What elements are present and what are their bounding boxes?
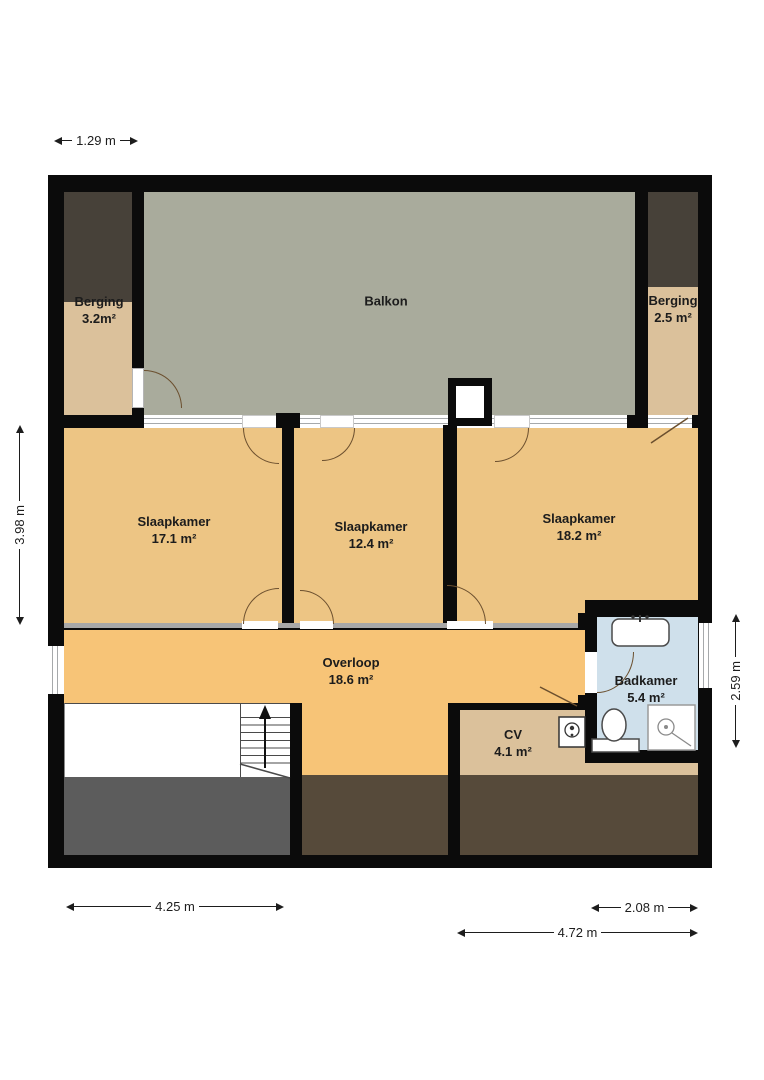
- room-name: Berging: [648, 293, 697, 310]
- dimension-line: [668, 907, 690, 908]
- arrow-down-icon: [732, 740, 740, 748]
- wall: [282, 415, 294, 630]
- arrow-right-icon: [690, 904, 698, 912]
- room-area: 4.1 m²: [494, 744, 532, 761]
- wall: [585, 600, 698, 617]
- dimension-line: [735, 705, 736, 740]
- void-space: [302, 775, 448, 855]
- arrow-up-icon: [732, 614, 740, 622]
- door-opening: [242, 415, 278, 428]
- wall: [290, 703, 302, 855]
- arrow-left-icon: [591, 904, 599, 912]
- room-area: 2.5 m²: [648, 310, 697, 327]
- label-slaapkamer-3: Slaapkamer 18.2 m²: [543, 511, 616, 545]
- arrow-right-icon: [276, 903, 284, 911]
- room-overloop-lower: [297, 703, 448, 775]
- dimension-bottom-right: 2.08 m: [591, 900, 698, 915]
- door-opening: [494, 415, 530, 428]
- dimension-line: [465, 932, 554, 933]
- room-name: Slaapkamer: [543, 511, 616, 528]
- room-name: CV: [494, 727, 532, 744]
- room-name: Overloop: [322, 655, 379, 672]
- dimension-bottom-total: 4.72 m: [457, 925, 698, 940]
- stair-treads: [241, 717, 290, 765]
- label-overloop: Overloop 18.6 m²: [322, 655, 379, 689]
- chimney-shaft: [456, 386, 484, 418]
- room-area: 5.4 m²: [615, 690, 678, 707]
- label-cv: CV 4.1 m²: [494, 727, 532, 761]
- label-badkamer: Badkamer 5.4 m²: [615, 673, 678, 707]
- arrow-down-icon: [16, 617, 24, 625]
- wall: [448, 703, 540, 710]
- room-area: 17.1 m²: [138, 531, 211, 548]
- wall: [64, 415, 144, 428]
- room-name: Berging: [74, 294, 123, 311]
- door-opening: [320, 415, 354, 428]
- dimension-bottom-left: 4.25 m: [66, 899, 284, 914]
- window: [48, 646, 64, 694]
- dimension-line: [599, 907, 621, 908]
- dimension-line: [19, 549, 20, 617]
- dimension-line: [120, 140, 130, 141]
- void-space: [460, 775, 698, 855]
- dimension-value: 4.72 m: [554, 925, 602, 940]
- arrow-left-icon: [66, 903, 74, 911]
- room-name: Badkamer: [615, 673, 678, 690]
- dimension-value: 2.59 m: [728, 657, 743, 705]
- wall: [635, 192, 648, 416]
- dimension-line: [199, 906, 276, 907]
- dimension-left: 3.98 m: [12, 425, 27, 625]
- door-opening: [648, 415, 692, 428]
- window: [699, 623, 712, 688]
- arrow-left-icon: [457, 929, 465, 937]
- attic-space-right: [648, 192, 698, 287]
- wall: [585, 750, 698, 763]
- arrow-right-icon: [130, 137, 138, 145]
- floor-strip: [583, 763, 698, 775]
- void-space: [64, 777, 290, 855]
- door-opening: [585, 652, 597, 693]
- attic-space-left: [64, 192, 132, 302]
- label-berging-left: Berging 3.2m²: [74, 294, 123, 328]
- balcony-window-band: [144, 415, 635, 428]
- label-slaapkamer-2: Slaapkamer 12.4 m²: [335, 519, 408, 553]
- dimension-value: 2.08 m: [621, 900, 669, 915]
- dimension-line: [601, 932, 690, 933]
- room-name: Slaapkamer: [335, 519, 408, 536]
- room-area: 3.2m²: [74, 311, 123, 328]
- label-berging-right: Berging 2.5 m²: [648, 293, 697, 327]
- room-name: Slaapkamer: [138, 514, 211, 531]
- dimension-value: 3.98 m: [12, 501, 27, 549]
- dimension-line: [74, 906, 151, 907]
- dimension-right: 2.59 m: [728, 614, 743, 748]
- arrow-right-icon: [690, 929, 698, 937]
- room-name: Balkon: [364, 294, 407, 311]
- label-slaapkamer-1: Slaapkamer 17.1 m²: [138, 514, 211, 548]
- room-area: 18.6 m²: [322, 672, 379, 689]
- dimension-value: 1.29 m: [72, 133, 120, 148]
- room-area: 18.2 m²: [543, 528, 616, 545]
- wall: [448, 703, 460, 855]
- floorplan-canvas: Balkon Berging 3.2m² Berging 2.5 m² Slaa…: [0, 0, 764, 1080]
- wall: [627, 415, 648, 428]
- door-leaf: [132, 368, 144, 408]
- label-balkon: Balkon: [364, 294, 407, 311]
- room-area: 12.4 m²: [335, 536, 408, 553]
- dimension-line: [735, 622, 736, 657]
- dimension-top-left: 1.29 m: [54, 133, 138, 148]
- arrow-up-icon: [16, 425, 24, 433]
- arrow-left-icon: [54, 137, 62, 145]
- dimension-line: [62, 140, 72, 141]
- dimension-value: 4.25 m: [151, 899, 199, 914]
- dimension-line: [19, 433, 20, 501]
